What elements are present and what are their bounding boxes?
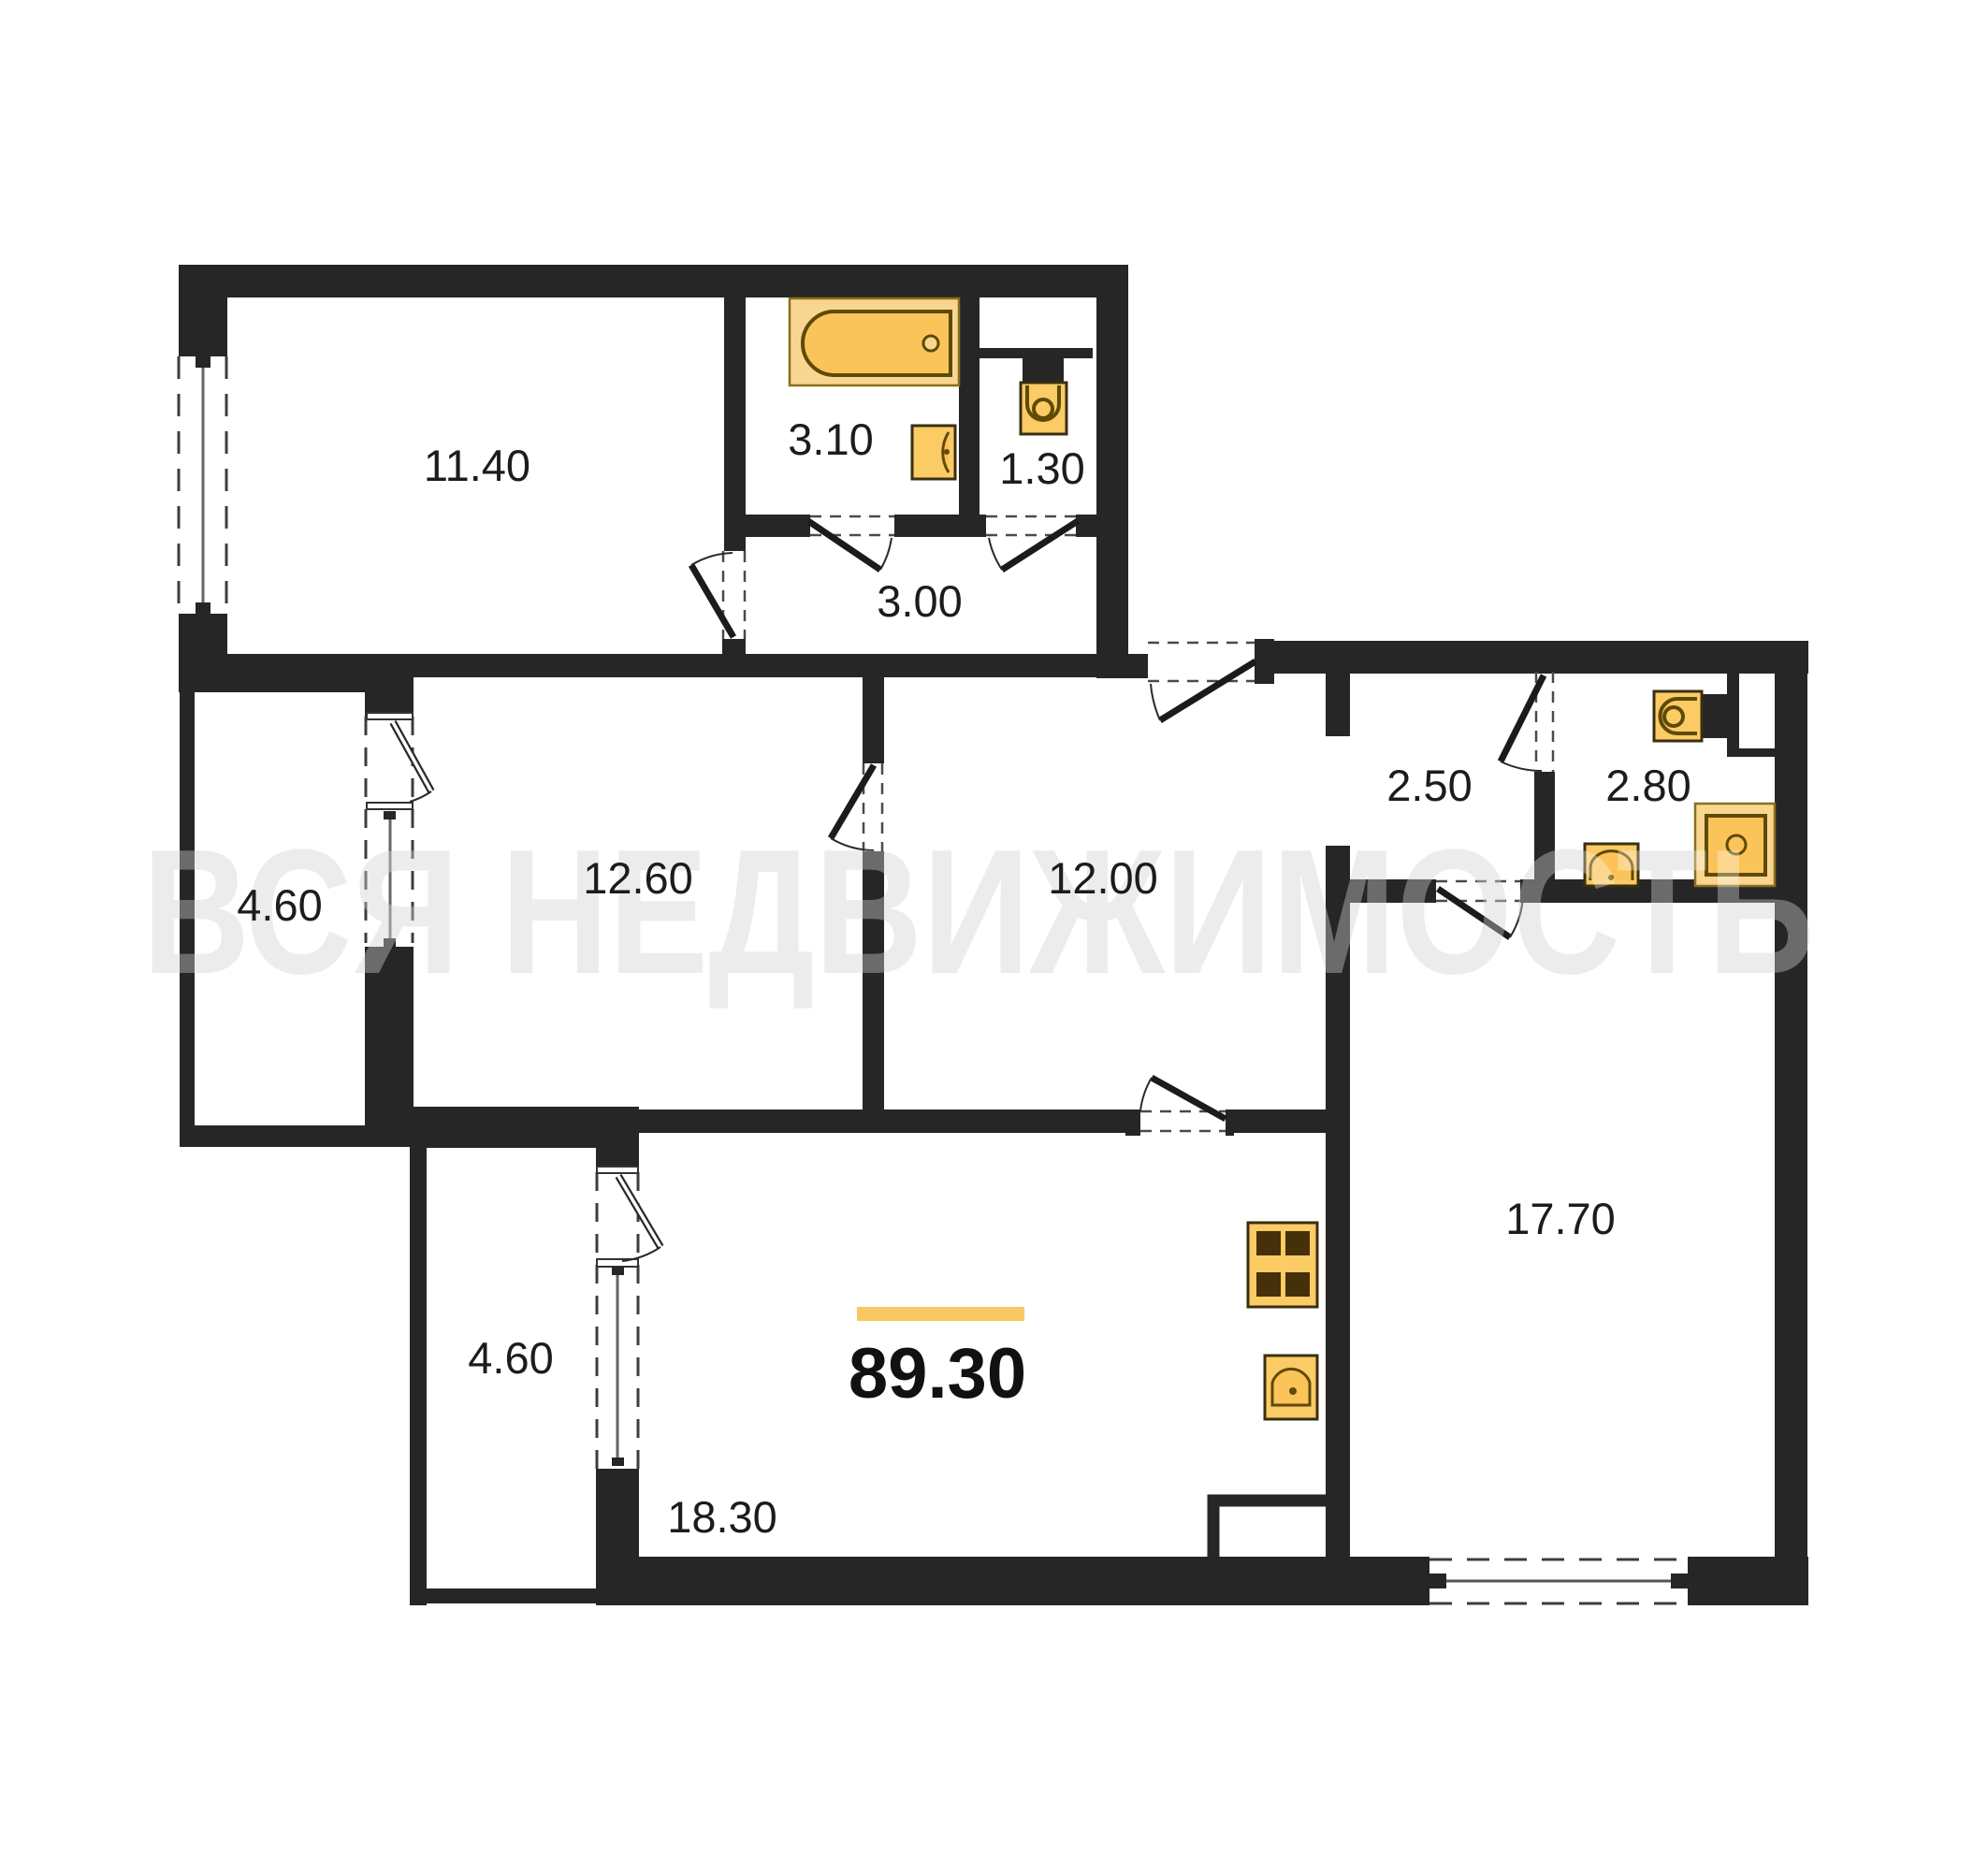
svg-text:4.60: 4.60 xyxy=(468,1333,553,1383)
svg-text:12.60: 12.60 xyxy=(583,853,693,903)
svg-text:11.40: 11.40 xyxy=(424,441,530,490)
svg-text:17.70: 17.70 xyxy=(1505,1194,1616,1243)
svg-text:2.80: 2.80 xyxy=(1605,761,1691,810)
svg-text:18.30: 18.30 xyxy=(667,1492,777,1542)
svg-text:ВСЯ НЕДВИЖИМОСТЬ: ВСЯ НЕДВИЖИМОСТЬ xyxy=(142,813,1815,1011)
svg-text:2.50: 2.50 xyxy=(1386,761,1472,810)
svg-text:89.30: 89.30 xyxy=(849,1334,1026,1414)
svg-text:4.60: 4.60 xyxy=(237,880,322,930)
svg-text:12.00: 12.00 xyxy=(1048,853,1158,903)
svg-text:3.10: 3.10 xyxy=(788,414,873,464)
svg-text:3.00: 3.00 xyxy=(877,576,962,626)
svg-text:1.30: 1.30 xyxy=(999,443,1084,493)
